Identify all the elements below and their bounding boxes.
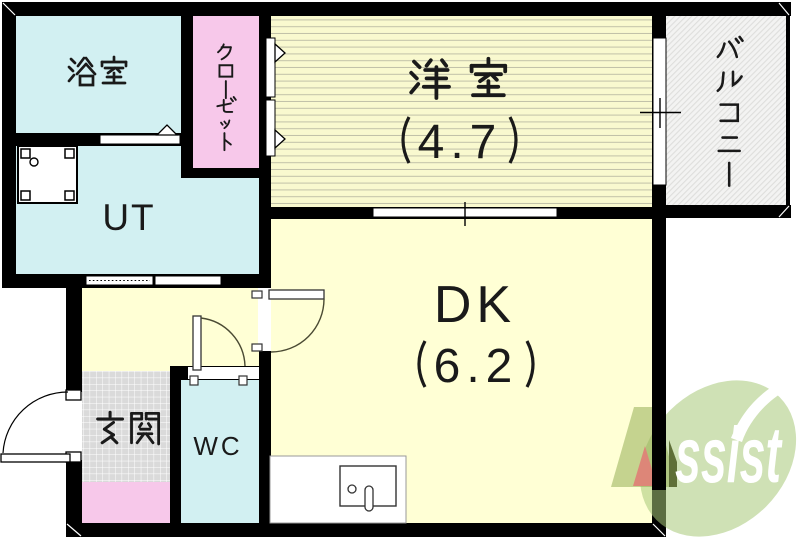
svg-text:6.2: 6.2 [434, 340, 519, 393]
svg-text:ssist: ssist [675, 410, 783, 499]
svg-text:UT: UT [102, 197, 155, 238]
svg-text:DK: DK [434, 276, 516, 334]
svg-text:WC: WC [193, 431, 242, 461]
svg-text:4.7: 4.7 [418, 116, 503, 169]
